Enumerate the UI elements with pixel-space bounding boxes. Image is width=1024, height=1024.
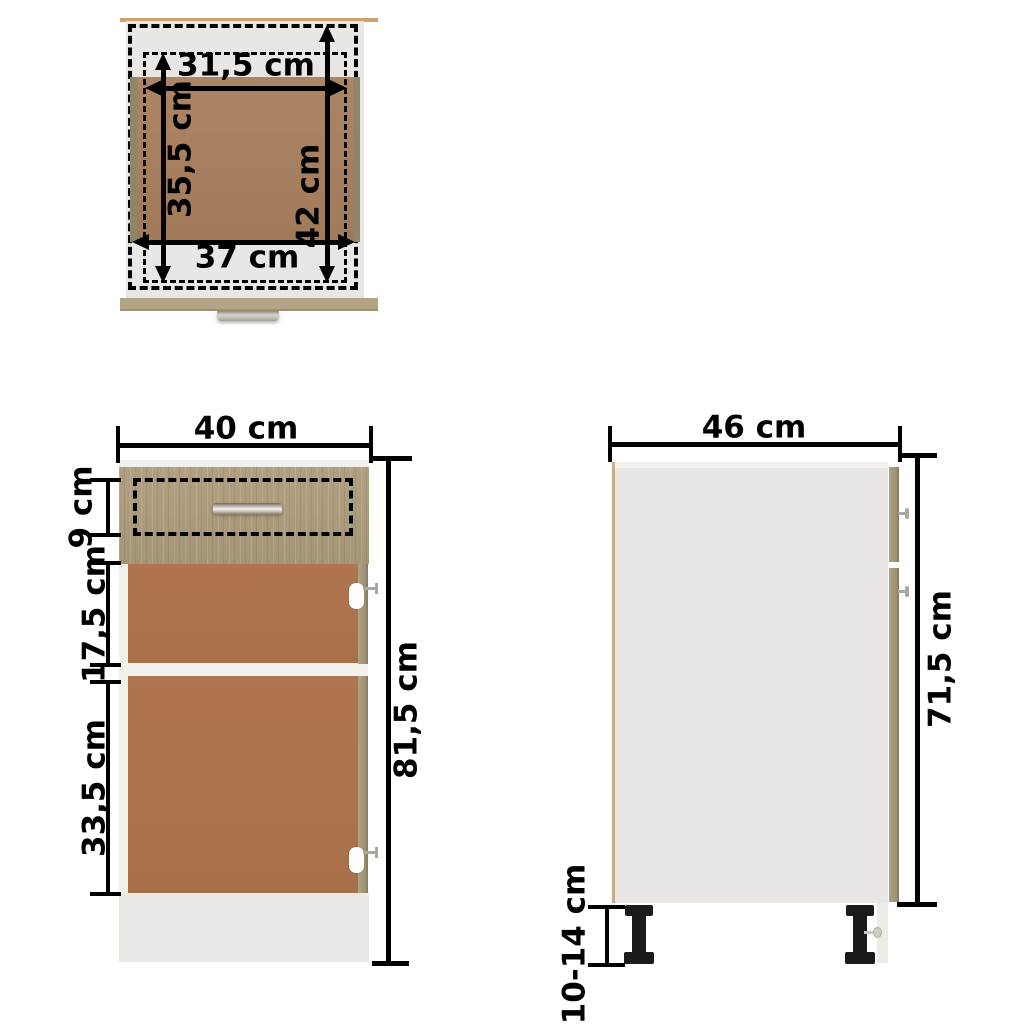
dim-depth-label: 46 cm <box>702 413 807 444</box>
dim-inner-width-arrow-left <box>145 80 162 96</box>
side-view-door-edge <box>889 568 899 902</box>
dim-upper-section-label: 17,5 cm <box>80 545 111 683</box>
side-view-door-handle-cap <box>905 586 909 597</box>
side-view-drawer-handle-cap <box>905 508 909 519</box>
side-view-body-top-edge <box>615 462 888 468</box>
dim-full-depth-arrow-down <box>319 266 335 283</box>
side-view-leg-back-stem <box>853 914 867 954</box>
front-view-hinge-bottom-pin-cap <box>375 847 378 858</box>
dim-body-height-label: 71,5 cm <box>926 590 957 728</box>
front-view-drawer-handle <box>213 503 282 514</box>
side-view-leg-adjuster-knob <box>873 927 882 938</box>
dim-width-label: 40 cm <box>194 414 299 445</box>
dim-leg-height-tick-top <box>588 905 625 909</box>
product-dimension-diagram: 31,5 cm 35,5 cm 42 cm 37 cm <box>0 0 1024 1024</box>
top-view-drawer-front-strip <box>120 298 378 311</box>
dim-full-depth-arrow-up <box>319 25 335 42</box>
dim-drawer-height-label: 9 cm <box>67 465 98 548</box>
dim-body-height-tick-top <box>898 453 937 458</box>
dim-inner-depth-arrow-up <box>155 53 171 70</box>
dim-inner-depth-arrow-down <box>155 266 171 283</box>
dim-drawer-height-line <box>106 478 110 537</box>
side-view-leg-back-foot <box>845 952 875 964</box>
front-view-shelf-notch <box>358 664 368 676</box>
front-view-hinge-bottom <box>349 847 364 873</box>
front-view-top-edge <box>119 460 369 467</box>
dim-width-tick-left <box>116 426 120 463</box>
dim-lower-section-label: 33,5 cm <box>80 719 111 857</box>
dim-lower-section-tick-top <box>90 680 121 684</box>
front-view-shelf <box>128 663 358 676</box>
side-view-leg-front-foot <box>624 952 654 964</box>
top-view-handle <box>217 311 279 321</box>
dim-inner-depth-label: 35,5 cm <box>166 80 197 218</box>
front-view-interior-upper <box>128 564 358 663</box>
dim-depth-tick-left <box>608 426 612 462</box>
front-view-left-side-edge <box>119 564 128 893</box>
dim-total-height-tick-bottom <box>372 961 409 966</box>
dim-inner-width-label: 31,5 cm <box>177 51 315 82</box>
dim-inner-width-arrow-right <box>330 80 347 96</box>
dim-leg-height-line <box>605 905 609 967</box>
dim-outer-width-label: 37 cm <box>195 243 300 274</box>
dim-body-height-line <box>915 453 920 907</box>
dim-outer-width-arrow-right <box>338 234 355 250</box>
dim-full-depth-label: 42 cm <box>294 144 325 249</box>
dim-leg-height-tick-bottom <box>588 963 625 967</box>
dim-body-height-tick-bottom <box>897 902 937 907</box>
front-view-hinge-top <box>349 583 364 609</box>
dim-total-height-label: 81,5 cm <box>392 641 423 779</box>
dim-outer-width-arrow-left <box>132 234 149 250</box>
dim-total-height-tick-top <box>372 456 412 461</box>
dim-lower-section-tick-bottom <box>90 892 121 896</box>
front-view-interior-lower <box>128 676 358 893</box>
side-view-body-panel <box>612 462 888 903</box>
dim-leg-height-label: 10-14 cm <box>560 864 591 1024</box>
front-view-hinge-top-pin-cap <box>375 583 378 594</box>
front-view-plinth <box>119 893 369 962</box>
side-view-leg-front-stem <box>632 914 646 954</box>
